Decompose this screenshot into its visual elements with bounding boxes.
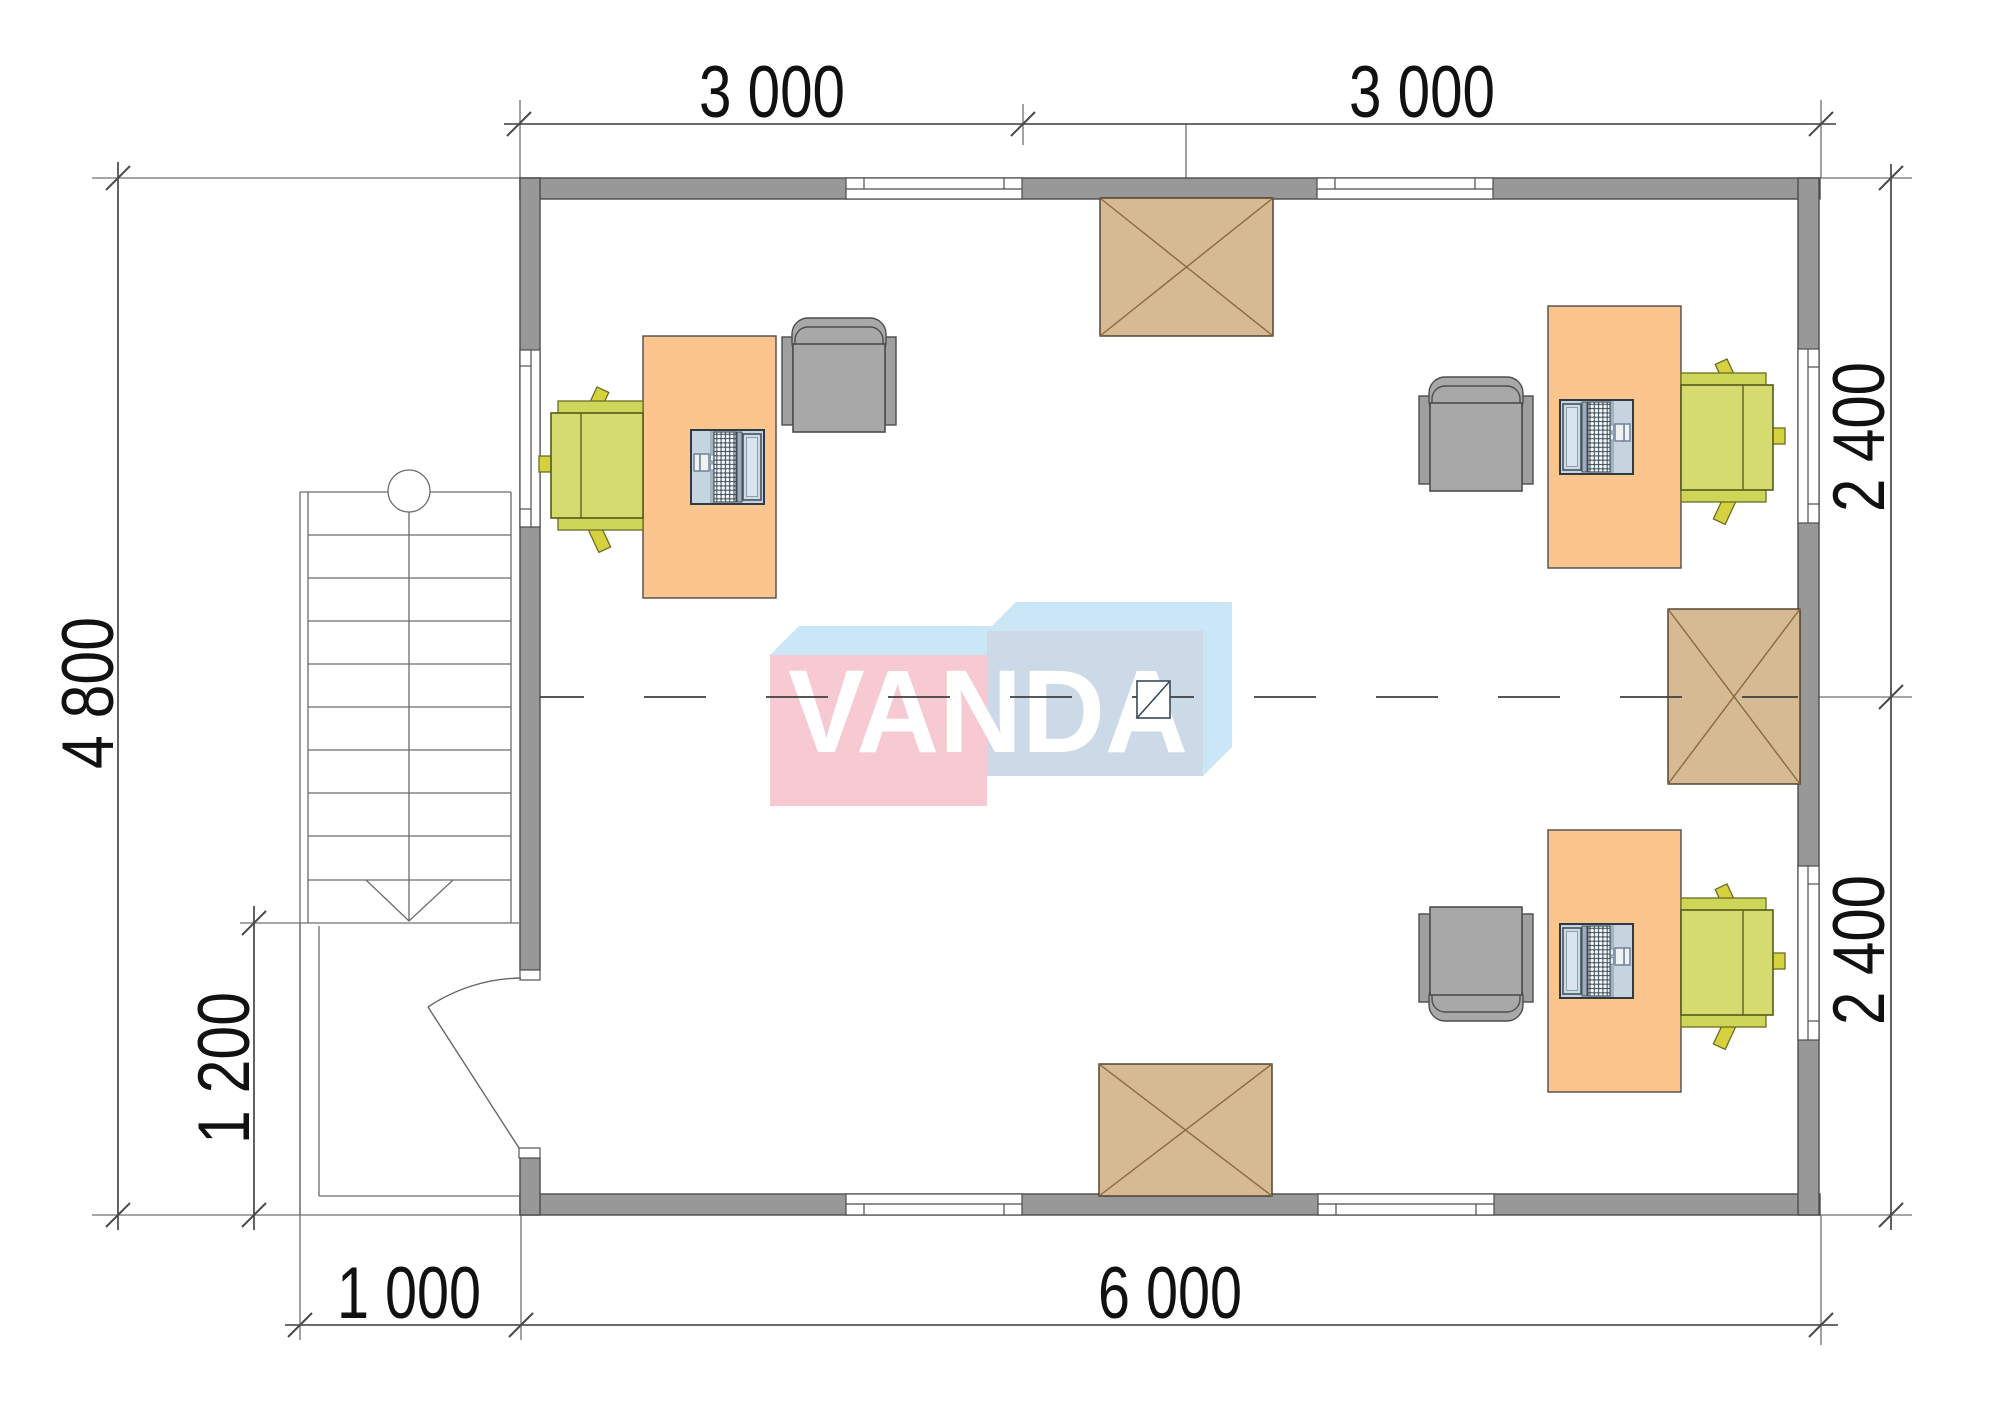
svg-text:1 200: 1 200 <box>184 992 265 1144</box>
svg-text:VANDA: VANDA <box>788 646 1188 778</box>
svg-text:3 000: 3 000 <box>699 52 845 133</box>
svg-text:2 400: 2 400 <box>1819 362 1900 512</box>
svg-text:3 000: 3 000 <box>1349 52 1495 133</box>
svg-text:1 000: 1 000 <box>337 1253 481 1334</box>
svg-text:4 800: 4 800 <box>48 617 129 769</box>
svg-text:6 000: 6 000 <box>1098 1253 1242 1334</box>
svg-text:2 400: 2 400 <box>1819 875 1900 1025</box>
